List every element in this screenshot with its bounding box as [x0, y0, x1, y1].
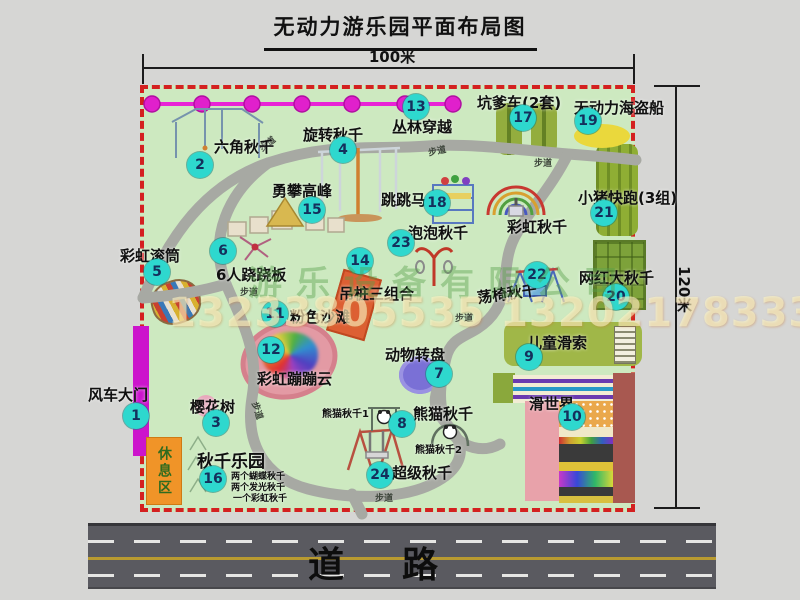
badge-windmill-gate: 1	[123, 403, 149, 429]
badge-swing-park: 16	[200, 466, 226, 492]
badge-hexagon-swing: 2	[187, 152, 213, 178]
badge-cherry-tree: 3	[203, 410, 229, 436]
slide-world-green-pad	[493, 373, 515, 403]
badge-rainbow-roller: 5	[144, 259, 170, 285]
label-panda-swing: 熊猫秋千	[413, 403, 473, 424]
label-peak-climbing: 勇攀高峰	[272, 180, 332, 201]
badge-six-person-seesaw: 6	[210, 238, 236, 264]
badge-rotating-swing: 4	[330, 137, 356, 163]
badge-pit-cart: 17	[510, 105, 536, 131]
walkway-label-3: 步道	[534, 156, 552, 169]
badge-piggy-run: 21	[591, 200, 617, 226]
slide-world-rainbow-band	[559, 471, 613, 487]
park-layout-plan: 无动力游乐园平面布局图 100米 120米 休息区	[0, 0, 800, 600]
label-swing-park-item-3: 一个彩虹秋千	[233, 491, 287, 504]
badge-super-swing: 24	[367, 462, 393, 488]
badge-kids-zipline: 9	[516, 344, 542, 370]
badge-jumping-horse: 18	[424, 190, 450, 216]
label-rainbow-swing: 彩虹秋千	[507, 216, 567, 237]
badge-jungle-crossing: 13	[403, 94, 429, 120]
label-bubble-swing: 泡泡秋千	[408, 222, 468, 243]
label-pink-beach: 粉色沙滩	[290, 306, 350, 327]
walkway-label-4: 步道	[240, 285, 258, 298]
page-title: 无动力游乐园平面布局图	[0, 11, 800, 51]
badge-swing-chair: 22	[524, 262, 550, 288]
rest-area-box: 休息区	[146, 437, 182, 505]
badge-hanging-post-combo: 14	[347, 248, 373, 274]
badge-pirate-ship: 19	[575, 108, 601, 134]
slide-world-dark-band	[613, 373, 635, 503]
slide-world-pink-band	[525, 401, 559, 501]
label-super-swing: 超级秋千	[392, 462, 452, 483]
label-rainbow-bounce-cloud: 彩虹蹦蹦云	[257, 368, 332, 389]
label-hexagon-swing: 六角秋千	[214, 136, 274, 157]
walkway-label-5: 步道	[455, 311, 473, 324]
badge-pink-beach: 11	[262, 301, 288, 327]
label-jumping-horse: 跳跳马	[381, 189, 426, 210]
label-jungle-crossing: 丛林穿越	[392, 116, 452, 137]
slide-world-yellow-band-2	[559, 496, 613, 503]
badge-rainbow-bounce-cloud: 12	[258, 337, 284, 363]
zipline-ladder-icon	[614, 326, 636, 364]
label-hanging-post-combo: 吊桩三组合	[339, 283, 414, 304]
slide-world-black-band-2	[559, 487, 613, 496]
slide-world-rainbow-line	[559, 437, 613, 444]
road-label: 道路	[88, 536, 716, 588]
badge-peak-climbing: 15	[299, 197, 325, 223]
label-windmill-gate: 风车大门	[88, 384, 148, 405]
slide-world-yellow-band-1	[559, 462, 613, 471]
badge-panda-swing: 8	[389, 411, 415, 437]
label-panda-swing-2: 熊猫秋千2	[415, 441, 462, 456]
badge-viral-big-swing: 20	[603, 284, 629, 310]
dimension-right-label: 120米	[674, 266, 695, 312]
badge-bubble-swing: 23	[388, 230, 414, 256]
walkway-label-7: 步道	[375, 491, 393, 504]
badge-slide-world: 10	[559, 404, 585, 430]
label-six-person-seesaw: 6人跷跷板	[216, 264, 286, 285]
label-panda-swing-1: 熊猫秋千1	[322, 405, 369, 420]
badge-animal-carousel: 7	[426, 361, 452, 387]
road: 道路	[88, 523, 716, 589]
rest-area-label: 休息区	[154, 446, 174, 497]
slide-world-black-band-1	[559, 444, 613, 462]
